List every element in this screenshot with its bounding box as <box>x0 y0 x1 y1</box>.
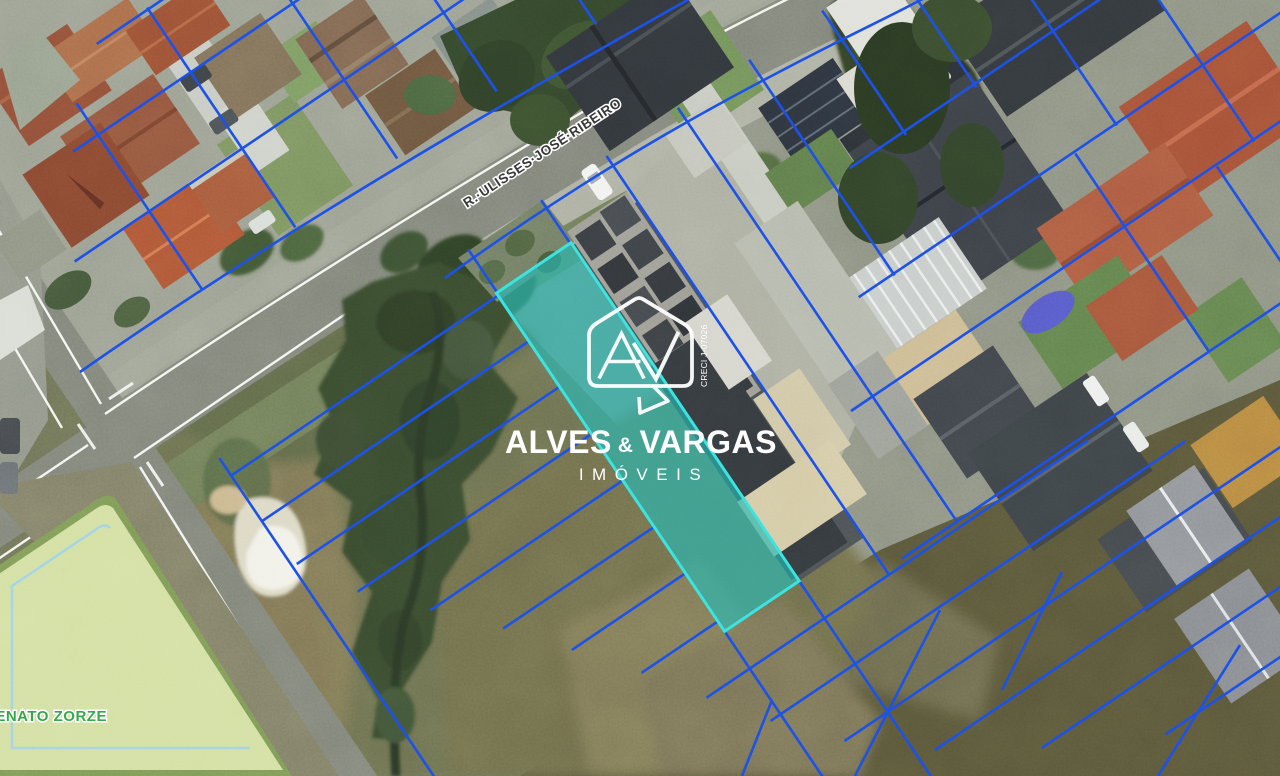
svg-text:CRECI J-07026: CRECI J-07026 <box>699 324 709 387</box>
svg-text:ALVES&VARGAS: ALVES&VARGAS <box>505 424 777 460</box>
svg-text:IMÓVEIS: IMÓVEIS <box>579 465 709 484</box>
